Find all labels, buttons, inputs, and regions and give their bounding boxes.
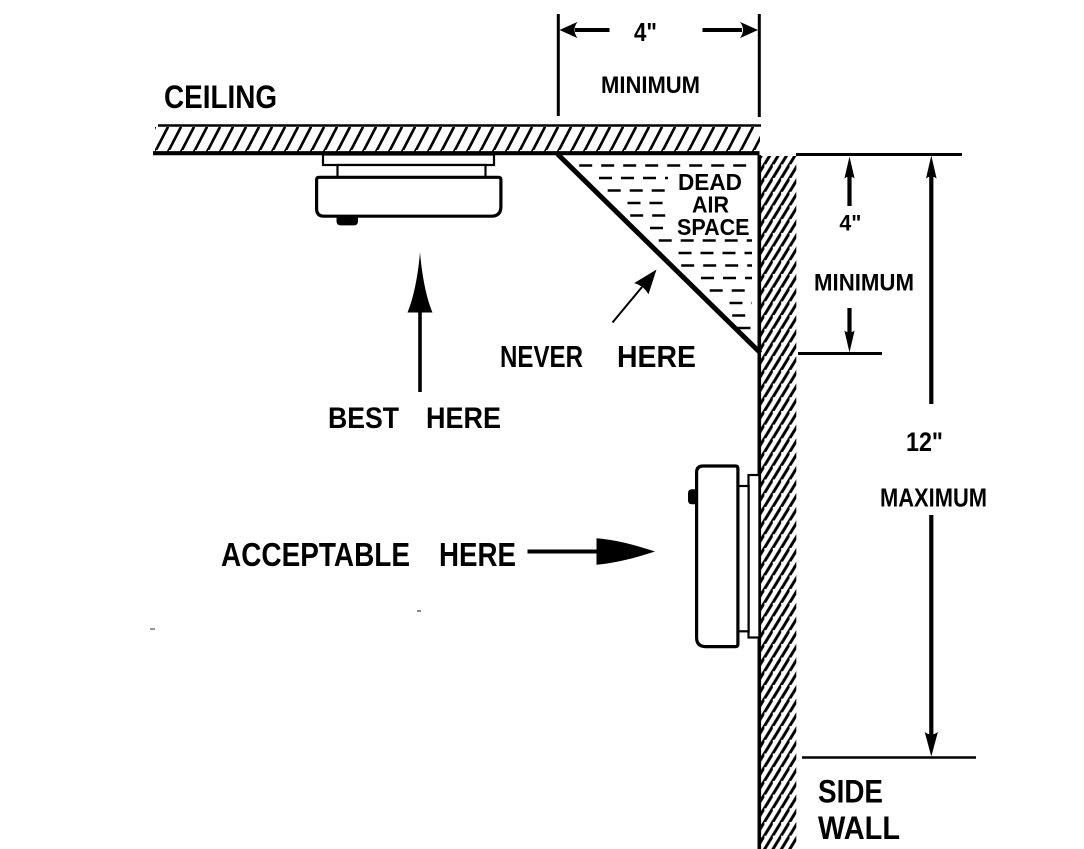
svg-text:WALL: WALL [818,810,900,846]
svg-text:4": 4" [839,211,861,236]
svg-text:CEILING: CEILING [164,79,277,115]
svg-text:NEVER: NEVER [500,339,583,374]
svg-text:SPACE: SPACE [677,214,750,240]
svg-text:HERE: HERE [426,402,501,435]
svg-text:HERE: HERE [439,536,516,573]
svg-text:MAXIMUM: MAXIMUM [880,483,987,513]
svg-text:HERE: HERE [617,339,696,374]
svg-text:MINIMUM: MINIMUM [601,72,700,99]
svg-text:BEST: BEST [328,402,399,435]
svg-text:MINIMUM: MINIMUM [814,270,914,297]
svg-text:ACCEPTABLE: ACCEPTABLE [221,536,410,573]
svg-text:4": 4" [634,17,657,47]
svg-text:SIDE: SIDE [818,774,883,810]
svg-text:12": 12" [906,427,943,457]
